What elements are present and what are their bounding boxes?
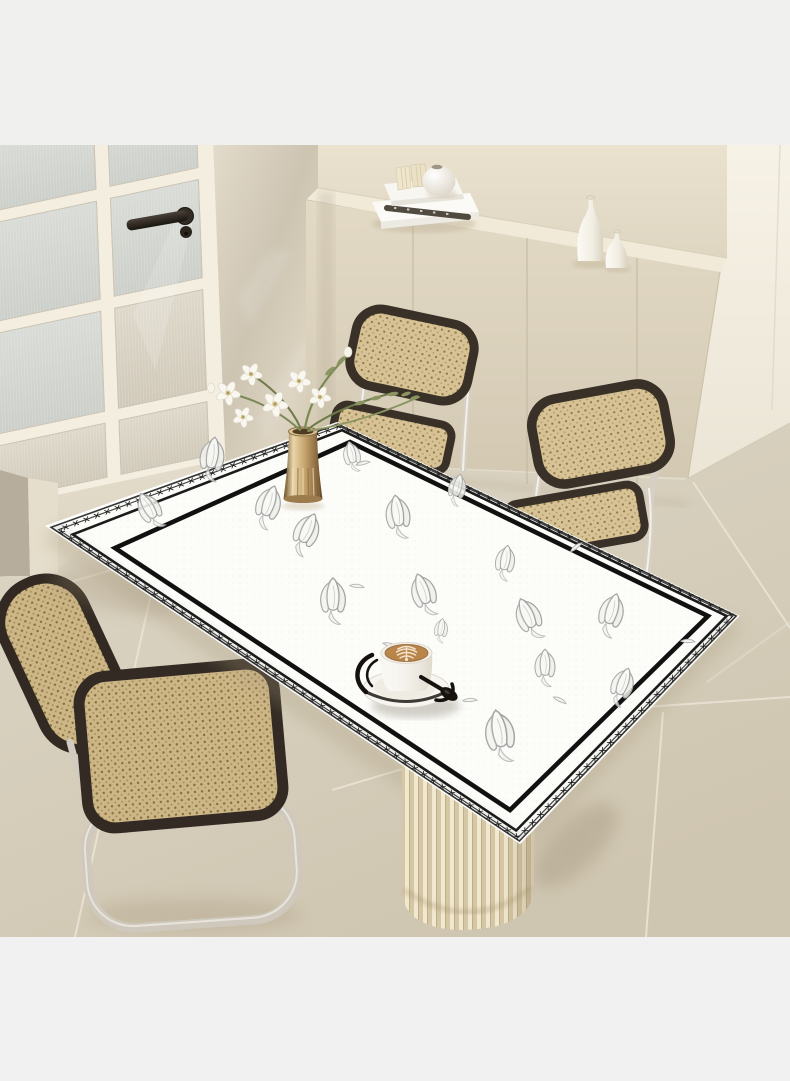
backdrop-bottom-band bbox=[0, 937, 790, 1081]
orchid-bud-2 bbox=[207, 383, 214, 393]
orchid-bud-1 bbox=[344, 347, 352, 357]
door-bottom-shadow-wedge bbox=[0, 470, 30, 576]
bottle-tall-lip bbox=[586, 196, 595, 200]
bottle-small-lip bbox=[614, 230, 621, 233]
scene-svg: ××××××××××××××××××××××××××××××××××××××××… bbox=[0, 0, 790, 1081]
round-vase-mouth bbox=[432, 165, 443, 169]
chair-b-backrest bbox=[527, 380, 674, 489]
round-vase bbox=[423, 166, 456, 196]
chair-c-seat bbox=[77, 662, 286, 831]
mini-book-1 bbox=[396, 166, 411, 190]
gold-vase-foot bbox=[284, 495, 323, 503]
backdrop-top-band bbox=[0, 0, 790, 145]
photo-canvas: ××××××××××××××××××××××××××××××××××××××××… bbox=[0, 0, 790, 1081]
keyhole-dot bbox=[184, 232, 188, 236]
